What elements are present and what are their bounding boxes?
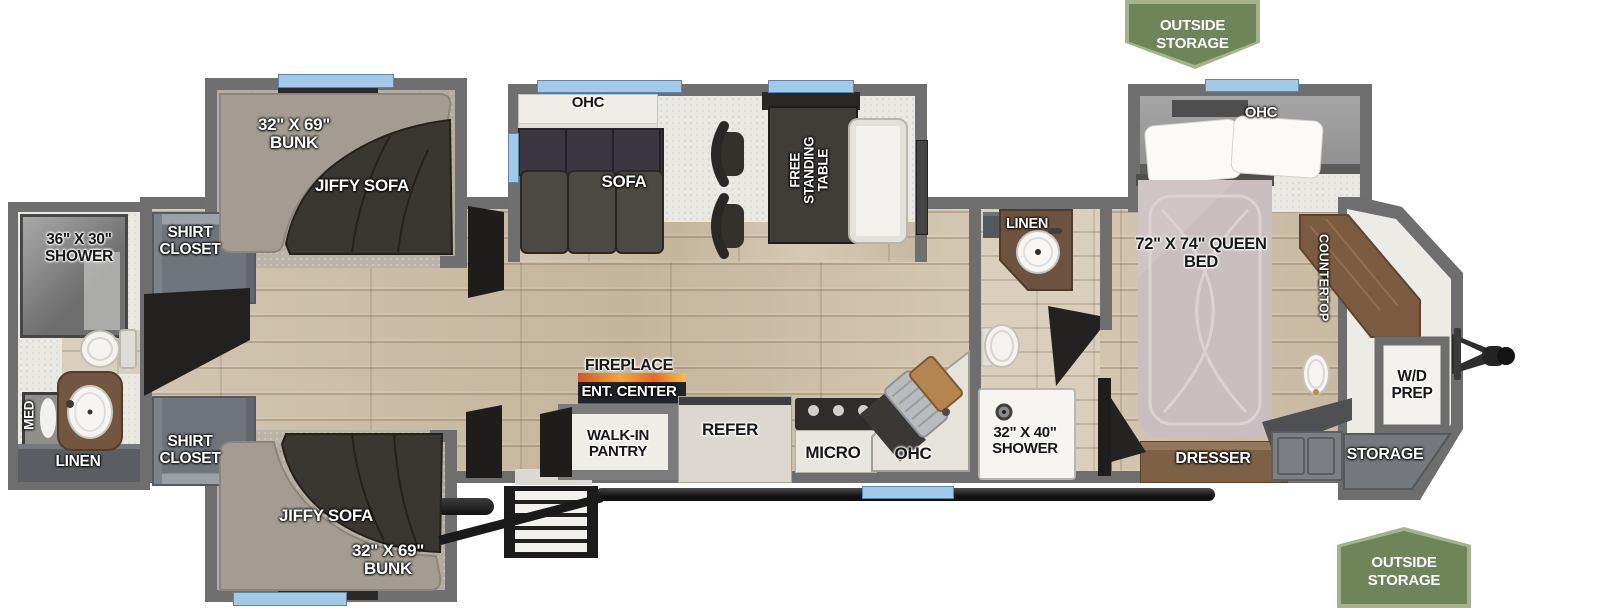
hitch-jack	[1454, 328, 1461, 380]
label-queen-bed: 72" X 74" QUEEN BED	[1126, 236, 1276, 272]
bunkroom-bottom-window	[233, 592, 347, 606]
living-window-right	[768, 80, 854, 93]
bunkroom-top-window	[278, 74, 394, 88]
stove-burner-4	[883, 405, 894, 416]
stove-burner-3	[858, 405, 869, 416]
label-top-jiffy-sofa: JIFFY SOFA	[302, 177, 422, 195]
queen-bed-mattress	[1138, 180, 1272, 437]
banner-fill: OUTSIDE STORAGE	[1129, 4, 1256, 65]
label-living-ohc: OHC	[558, 95, 618, 111]
label-countertop: COUNTERTOP	[1316, 222, 1330, 334]
living-window-left	[537, 80, 682, 93]
label-mid-linen: LINEN	[992, 217, 1062, 233]
outside-storage-banner-top: OUTSIDE STORAGE	[1125, 0, 1260, 69]
label-bedroom-ohc: OHC	[1231, 105, 1291, 121]
stove-burner-2	[833, 405, 844, 416]
hitch-ball	[1497, 347, 1515, 365]
sofa-back	[518, 128, 664, 176]
mid-bath-wall-right-upper	[1100, 209, 1112, 330]
stabilizer-jack	[436, 498, 494, 515]
banner-top-text: OUTSIDE STORAGE	[1147, 17, 1239, 52]
label-micro: MICRO	[793, 444, 873, 462]
banner-bottom-text: OUTSIDE STORAGE	[1358, 554, 1450, 589]
label-sofa: SOFA	[584, 173, 664, 191]
bunkroom-bottom-doorway	[250, 430, 430, 444]
bunkroom-top-doorway	[250, 250, 440, 268]
label-top-bunk: 32" X 69" BUNK	[238, 116, 350, 153]
mid-bath-wall-right-lower	[1100, 425, 1112, 471]
floorplan-canvas: OUTSIDE STORAGE OUTSIDE STORAGE	[0, 0, 1600, 614]
label-wd-prep: W/D PREP	[1377, 369, 1447, 402]
hitch-a-frame	[1452, 334, 1492, 374]
label-med-cabinet: MED	[23, 389, 38, 441]
label-bottom-jiffy-sofa: JIFFY SOFA	[266, 507, 386, 525]
label-rear-linen: LINEN	[33, 454, 123, 471]
label-dresser: DRESSER	[1163, 450, 1263, 467]
bed-pillow-right	[1230, 115, 1324, 179]
refrigerator	[678, 396, 792, 483]
label-walk-in-pantry: WALK-IN PANTRY	[568, 428, 668, 460]
label-free-standing-table: FREE STANDING TABLE	[789, 128, 832, 212]
label-rear-shower: 36" X 30" SHOWER	[29, 232, 129, 265]
bunkroom-top-ohc-shelf	[278, 86, 378, 100]
living-window-dark	[916, 140, 928, 235]
hitch-coupler	[1482, 346, 1506, 366]
label-kitchen-ohc: OHC	[883, 445, 943, 463]
bedroom-window	[1205, 79, 1299, 92]
entry-steps	[504, 486, 598, 558]
label-storage: STORAGE	[1330, 446, 1440, 463]
sofa-seat-left	[520, 170, 569, 254]
med-cabinet-mirror	[40, 398, 56, 438]
outside-storage-banner-bottom: OUTSIDE STORAGE	[1337, 527, 1471, 608]
bench-seat	[848, 118, 908, 244]
hitch-a-frame-cutout	[1460, 342, 1484, 364]
label-shirt-closet-top: SHIRT CLOSET	[145, 225, 235, 258]
label-shirt-closet-bottom: SHIRT CLOSET	[145, 434, 235, 467]
label-mid-shower: 32" X 40" SHOWER	[975, 425, 1075, 457]
living-window-side	[508, 133, 519, 183]
fireplace-flame	[578, 373, 686, 382]
bed-pillow-left	[1144, 118, 1243, 186]
label-bottom-bunk: 32" X 69" BUNK	[332, 542, 444, 579]
kitchen-window	[862, 486, 954, 499]
label-refer: REFER	[690, 421, 770, 439]
label-fireplace: FIREPLACE	[574, 357, 684, 374]
stove-burner-1	[808, 405, 819, 416]
label-ent-center: ENT. CENTER	[574, 384, 684, 400]
